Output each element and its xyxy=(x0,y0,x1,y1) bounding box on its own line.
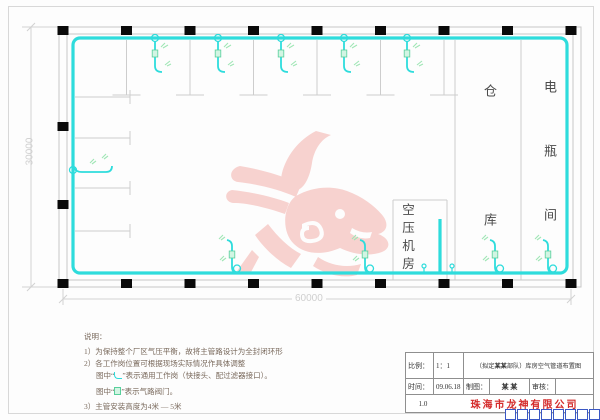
dimension-horizontal: 60000 xyxy=(292,293,326,304)
note-line-3: 图中“”表示通用工作岗（快接头、配过滤器接口）。 xyxy=(96,372,283,380)
compressor-feed-pipe xyxy=(422,219,454,273)
note-line-5: 3）主管安装高度为4米 — 5米 xyxy=(84,403,283,411)
title-block: 比例： 1：1 （拟定 某某 部队）库房空气管道布置图 时间： 09.06.18… xyxy=(405,352,594,413)
room-label-compressor: 空压机房 xyxy=(398,203,417,275)
title-block-row-2: 时间： 09.06.18 制图： 某 某 审核： xyxy=(406,379,593,395)
date-value: 09.06.18 xyxy=(434,379,464,394)
date-label: 时间： xyxy=(406,379,434,394)
workstation-drops-top xyxy=(152,35,424,73)
cad-drawing-page: { "drawing": { "dim_vertical": "30000", … xyxy=(0,0,600,418)
reviewer-label: 审核： xyxy=(530,379,556,394)
drawing-title: （拟定 某某 部队）库房空气管道布置图 xyxy=(464,353,593,378)
room-label-battery: 电瓶间 xyxy=(540,80,559,272)
notes-heading: 说明： xyxy=(84,333,283,341)
note-line-1: 1）为保持整个厂区气压平衡，故将主管路设计为全封闭环形 xyxy=(84,348,283,356)
room-label-warehouse: 仓库 xyxy=(480,84,499,342)
drafter-value: 某 某 xyxy=(490,379,530,394)
scale-value: 1：1 xyxy=(434,353,464,378)
workstation-branch-left xyxy=(70,154,113,174)
version-value: 1.0 xyxy=(406,395,440,412)
drafter-label: 制图： xyxy=(464,379,490,394)
note-line-4: 图中“”表示气路阀门。 xyxy=(96,387,283,396)
note-line-2: 2）各工作岗位置可根据现场实际情况作具体调整 xyxy=(84,360,283,368)
selection-grips xyxy=(505,409,600,420)
notes-block: 说明： 1）为保持整个厂区气压平衡，故将主管路设计为全封闭环形 2）各工作岗位置… xyxy=(84,333,283,411)
title-block-row-1: 比例： 1：1 （拟定 某某 部队）库房空气管道布置图 xyxy=(406,353,593,379)
dimension-vertical: 30000 xyxy=(25,132,36,172)
reviewer-value xyxy=(556,379,593,394)
scale-label: 比例： xyxy=(406,353,434,378)
